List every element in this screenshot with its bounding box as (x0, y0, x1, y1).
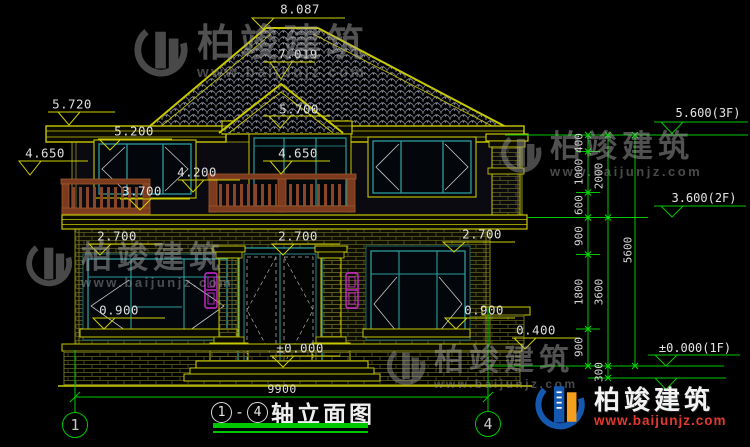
vdim-1800: 1800 (573, 279, 586, 306)
grid-bubble-4: 4 (475, 411, 501, 437)
watermark-logo-icon (500, 128, 544, 182)
vdim-900a: 900 (573, 226, 586, 246)
vdim-3600: 3600 (593, 279, 606, 306)
watermark-logo-icon (133, 22, 191, 84)
level-3f: 5.600(3F) (675, 106, 740, 120)
brand-logo-name: 柏竣建筑 (594, 387, 727, 413)
title-underline-thick (213, 423, 368, 428)
brand-logo-icon (534, 376, 586, 438)
brand-logo: 柏竣建筑 www.baijunjz.com (534, 376, 727, 438)
vdim-5600: 5600 (622, 237, 635, 264)
level-2f: 3.600(2F) (671, 191, 736, 205)
watermark-url: www.baijunjz.com (197, 64, 369, 81)
dim-left-window-sill: 3.700 (122, 184, 162, 199)
title-underline-thin (213, 431, 368, 433)
level-1f: ±0.000(1F) (659, 341, 731, 355)
brand-logo-url: www.baijunjz.com (594, 413, 727, 428)
window-2f-right (368, 137, 476, 197)
dim-plinth: 0.400 (516, 323, 556, 338)
watermark-logo-icon (386, 342, 428, 394)
dim-balcony-rail: 4.650 (278, 146, 318, 161)
cad-elevation-screenshot: 8.087 7.019 5.720 5.700 5.200 4.650 4.65… (0, 0, 750, 447)
title-axis-to: 4 (247, 402, 268, 423)
watermark-left: 柏竣建筑 www.baijunjz.com (25, 238, 233, 294)
vdim-600: 600 (573, 195, 586, 215)
dim-window-head-right: 2.700 (462, 227, 502, 242)
dim-center-lintel: 5.700 (279, 102, 319, 117)
porch-steps (184, 361, 380, 381)
watermark-logo-icon (25, 238, 75, 294)
dim-overall-width: 9900 (267, 382, 296, 396)
dim-left-rail: 4.650 (25, 146, 65, 161)
grid-bubble-1: 1 (62, 412, 88, 438)
watermark-brand: 柏竣建筑 (81, 242, 233, 275)
watermark-right: 柏竣建筑 www.baijunjz.com (500, 128, 702, 182)
watermark-brand: 柏竣建筑 (550, 131, 702, 164)
title-axis-from: 1 (211, 402, 232, 423)
watermark-brand: 柏竣建筑 (434, 345, 578, 377)
dim-door-head: 2.700 (278, 229, 318, 244)
window-1f-right (366, 246, 470, 340)
dim-left-eave: 5.720 (52, 97, 92, 112)
watermark-url: www.baijunjz.com (550, 164, 702, 179)
dim-left-window-mid: 4.200 (177, 165, 217, 180)
watermark-top: 柏竣建筑 www.baijunjz.com (133, 22, 369, 84)
dim-sill-right: 0.900 (464, 303, 504, 318)
dim-ground: ±0.000 (276, 341, 324, 356)
watermark-brand: 柏竣建筑 (197, 25, 369, 65)
title-separator: - (235, 403, 244, 421)
dim-left-window-head: 5.200 (114, 124, 154, 139)
dim-sill-left: 0.900 (99, 303, 139, 318)
floor-band (62, 215, 527, 229)
dim-ridge: 8.087 (280, 2, 320, 17)
watermark-url: www.baijunjz.com (81, 275, 233, 290)
